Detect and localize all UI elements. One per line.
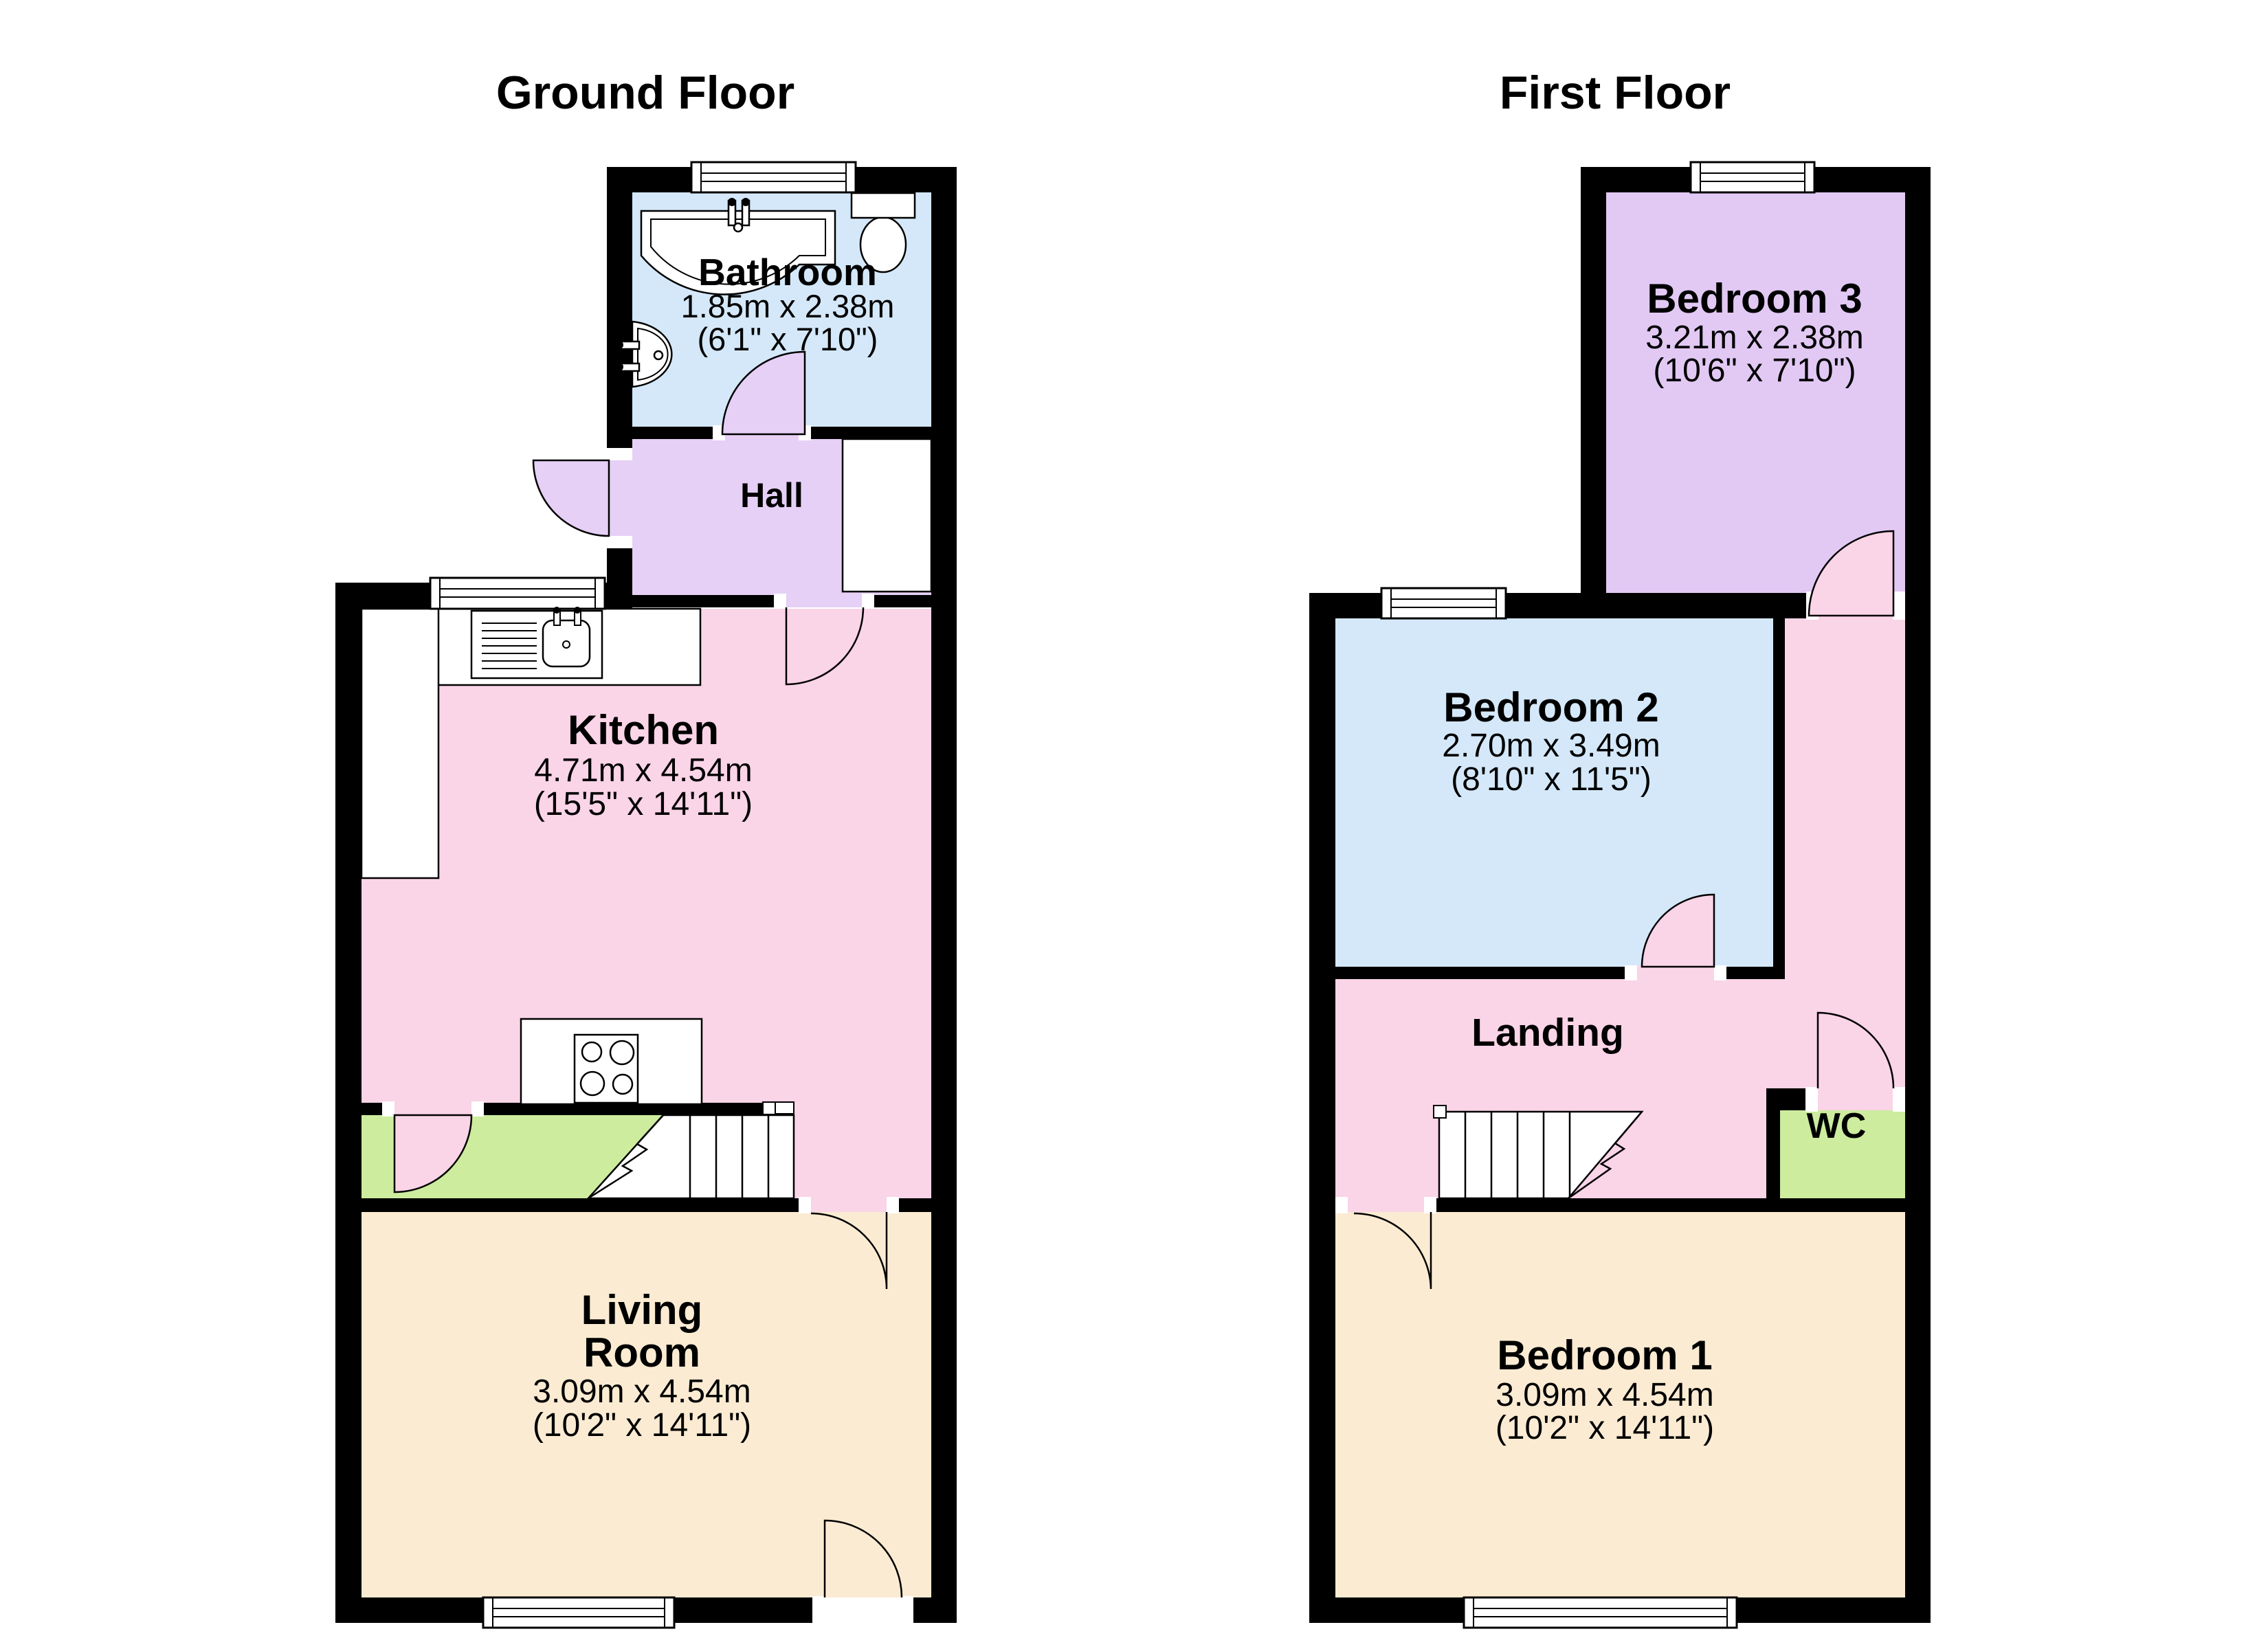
- svg-text:Bedroom 3: Bedroom 3: [1647, 276, 1862, 322]
- svg-text:2.70m x 3.49m: 2.70m x 3.49m: [1442, 728, 1660, 764]
- svg-text:Ground Floor: Ground Floor: [496, 67, 794, 119]
- svg-text:3.09m x 4.54m: 3.09m x 4.54m: [1496, 1377, 1713, 1413]
- svg-text:Room: Room: [583, 1330, 700, 1376]
- svg-text:3.09m x 4.54m: 3.09m x 4.54m: [533, 1373, 751, 1410]
- svg-text:(6'1" x 7'10"): (6'1" x 7'10"): [698, 321, 878, 357]
- svg-text:Landing: Landing: [1471, 1011, 1624, 1055]
- svg-text:Bathroom: Bathroom: [698, 251, 877, 293]
- svg-text:First Floor: First Floor: [1500, 67, 1731, 119]
- svg-text:1.85m x 2.38m: 1.85m x 2.38m: [681, 288, 895, 324]
- svg-text:(10'2" x 14'11"): (10'2" x 14'11"): [533, 1407, 751, 1444]
- svg-text:Bedroom 2: Bedroom 2: [1443, 684, 1658, 730]
- svg-text:Kitchen: Kitchen: [568, 707, 719, 753]
- svg-text:(10'6" x 7'10"): (10'6" x 7'10"): [1653, 352, 1856, 389]
- svg-text:4.71m x 4.54m: 4.71m x 4.54m: [534, 752, 752, 789]
- svg-text:WC: WC: [1807, 1106, 1867, 1146]
- svg-text:(10'2" x 14'11"): (10'2" x 14'11"): [1496, 1410, 1714, 1446]
- svg-text:(15'5" x 14'11"): (15'5" x 14'11"): [534, 786, 753, 822]
- svg-text:3.21m x 2.38m: 3.21m x 2.38m: [1645, 319, 1863, 356]
- svg-text:Hall: Hall: [740, 476, 803, 515]
- svg-text:(8'10" x 11'5"): (8'10" x 11'5"): [1451, 761, 1652, 798]
- svg-text:Living: Living: [581, 1287, 703, 1333]
- svg-text:Bedroom 1: Bedroom 1: [1497, 1332, 1712, 1378]
